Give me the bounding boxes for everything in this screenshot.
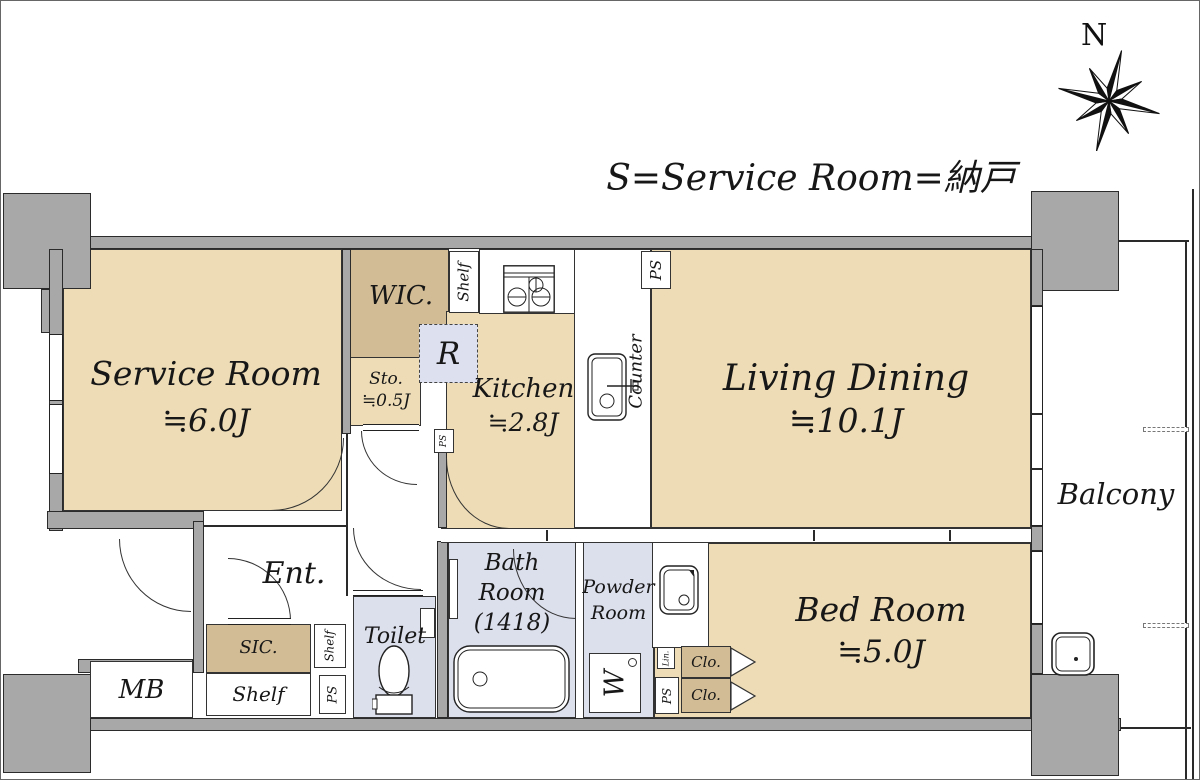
washer-label: W <box>589 653 641 713</box>
window-left-2 <box>49 404 63 474</box>
closet-lower-label: Clo. <box>681 684 731 706</box>
ps-hall-label: PS <box>434 429 454 453</box>
storage-area: ≒0.5J <box>347 391 425 411</box>
stove-icon <box>503 265 555 313</box>
balcony-sink-icon <box>1050 631 1096 677</box>
powder-label-2: Room <box>583 601 654 625</box>
window-mullion-2 <box>1031 468 1043 470</box>
entrance-door-sill <box>228 618 291 625</box>
column-top-right <box>1031 191 1119 291</box>
powder-label-1: Powder <box>583 575 654 599</box>
washbasin-icon <box>659 565 699 615</box>
bathtub-icon <box>453 645 570 713</box>
bedroom-label: Bed Room <box>741 589 1021 629</box>
wall-right-lower <box>1031 624 1043 674</box>
bath-label-1: Bath <box>456 549 568 577</box>
kitchen-shelf-label: Shelf <box>449 251 479 313</box>
wall-right-upper <box>1031 249 1043 306</box>
counter-label: Counter <box>621 331 651 411</box>
bedroom-area: ≒5.0J <box>741 633 1021 671</box>
balcony-label: Balcony <box>1041 475 1191 513</box>
column-bottom-right <box>1031 674 1119 776</box>
wall-entry-top-line <box>204 525 346 527</box>
slide-tick-2 <box>813 530 815 541</box>
window-mullion-1 <box>1031 413 1043 415</box>
toilet-door-sill <box>353 590 423 596</box>
kitchen-label: Kitchen <box>461 373 586 405</box>
linen-label: Lin. <box>657 647 675 669</box>
compass-north-label: N <box>1081 18 1107 53</box>
balcony-partition-mark-1 <box>1143 427 1189 432</box>
service-room-label: Service Room <box>76 353 336 393</box>
slide-tick-3 <box>949 530 951 541</box>
toilet-label: Toilet <box>355 623 435 649</box>
entry-shelf-side-label: Shelf <box>314 624 346 668</box>
door-arc-hall-top <box>361 431 417 485</box>
wall-hall-left-line <box>346 434 348 596</box>
entry-shelf-bottom-label: Shelf <box>206 681 311 707</box>
legend-text: S=Service Room=納戸 <box>601 149 1021 201</box>
ps-entry-label: PS <box>319 675 346 714</box>
wall-bottom <box>73 718 1121 731</box>
balcony-top-line <box>1119 240 1189 242</box>
compass-rose-icon: N <box>1047 11 1171 151</box>
sic-label: SIC. <box>216 635 301 659</box>
floor-plan: S=Service Room=納戸 <box>0 0 1200 780</box>
living-dining-label: Living Dining <box>661 356 1031 400</box>
entrance-label: Ent. <box>249 555 339 591</box>
door-arc-corridor <box>119 539 191 612</box>
wall-entry-left <box>193 521 204 673</box>
wall-toilet-bath <box>437 541 448 718</box>
toilet-icon <box>372 643 416 717</box>
balcony-bottom-line <box>1119 727 1191 729</box>
kitchen-area: ≒2.8J <box>463 407 583 437</box>
wall-right-mid <box>1031 526 1043 551</box>
mb-label: MB <box>90 676 193 704</box>
storage-label: Sto. <box>351 369 421 389</box>
service-room-area: ≒6.0J <box>76 401 336 441</box>
bath-label-3: (1418) <box>456 609 568 637</box>
ps-kitchen-label: PS <box>641 251 671 289</box>
sliding-door-track <box>441 528 1031 543</box>
balcony-partition-mark-2 <box>1143 623 1189 628</box>
window-left-1 <box>49 334 63 401</box>
column-top-left <box>3 193 91 289</box>
column-bottom-left <box>3 674 91 773</box>
slide-tick-1 <box>546 530 548 541</box>
bath-label-2: Room <box>456 579 568 607</box>
ps-powder-label: PS <box>655 677 679 714</box>
window-bedroom-right <box>1031 551 1043 624</box>
balcony-right-line-outer <box>1192 189 1194 779</box>
door-arc-toilet <box>353 528 421 590</box>
hall-top-door-sill <box>363 424 419 431</box>
wall-service-bottom <box>47 511 204 529</box>
wic-label: WIC. <box>353 279 449 313</box>
living-dining-area: ≒10.1J <box>661 400 1031 440</box>
closet-upper-label: Clo. <box>681 651 731 673</box>
wall-top <box>81 236 1041 249</box>
